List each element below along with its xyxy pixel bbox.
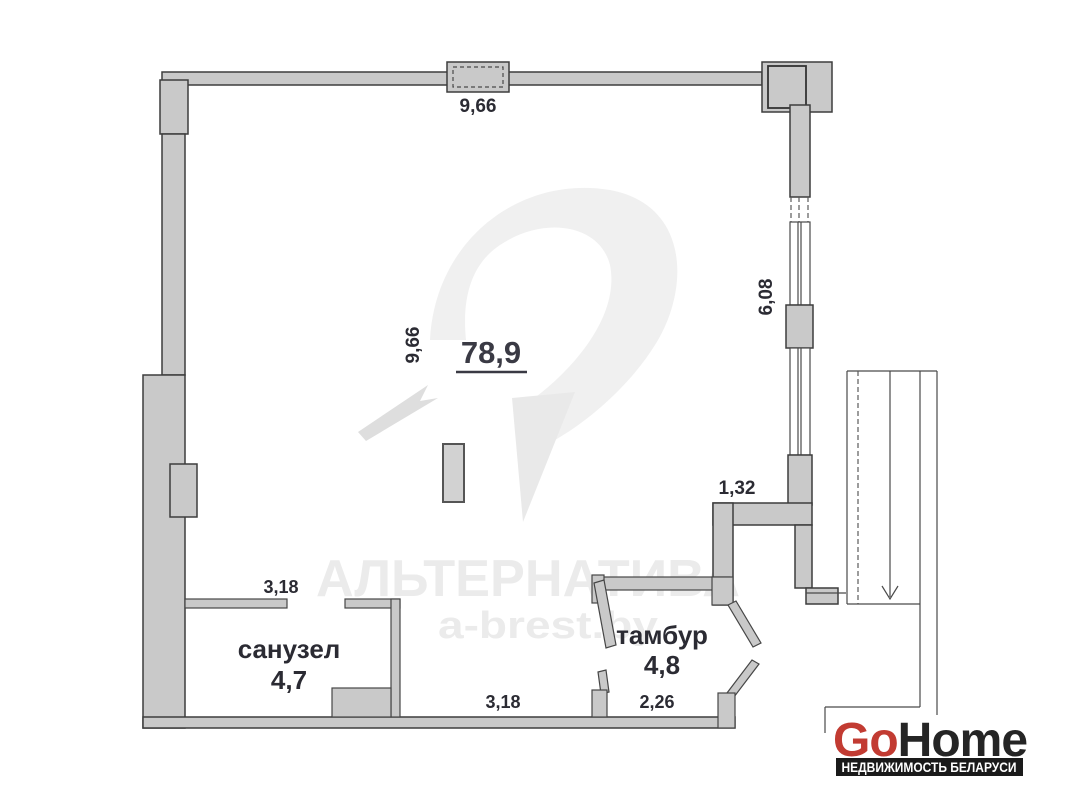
watermark-logo-shape [358,385,438,441]
dim-inner-width: 9,66 [403,327,424,364]
right-window-1 [790,222,810,305]
corner-column-ne-inner [768,66,806,108]
stair-landing-block [806,588,838,604]
tambur-wall-top [593,577,730,590]
bathroom-label: санузел [238,634,341,664]
bathroom-vent-shaft [332,688,391,717]
right-wall-block [786,305,813,348]
tambur-area: 4,8 [644,650,680,680]
left-wall-top-column [160,80,188,134]
tambur-corner-block [712,577,733,605]
gohome-tagline: НЕДВИЖИМОСТЬ БЕЛАРУСИ [842,760,1017,775]
bottom-wall [143,717,735,728]
staircase [806,371,937,733]
bathroom-wall-right [391,599,400,717]
left-wall-pilaster [170,464,197,517]
tambur-door-jamb-upper [728,601,761,647]
top-window-box-inner [453,67,503,87]
right-wall-below-niche [795,525,812,588]
bathroom-wall-top-left [185,599,287,608]
dim-niche-width: 1,32 [719,478,756,499]
left-wall-upper [162,134,185,375]
room-column [443,444,464,502]
right-wall-lower [788,455,812,505]
dim-bathroom-width: 3,18 [263,577,298,597]
dim-top-width: 9,66 [460,96,497,117]
tambur-post-bottom-right [718,693,735,728]
dim-right-height: 6,08 [756,279,777,316]
gohome-logo: GoHome НЕДВИЖИМОСТЬ БЕЛАРУСИ [833,714,1027,776]
tambur-label: тамбур [616,620,708,650]
watermark-logo-shape [512,392,575,522]
floor-plan-page: АЛЬТЕРНАТИВА a-brest.by [0,0,1068,800]
right-wall-upper [790,105,810,197]
left-wall-lower [143,375,185,728]
tambur-post-bottom-left [592,690,607,717]
bathroom-area: 4,7 [271,665,307,695]
tambur-door-jamb-lower [727,660,759,697]
total-area-label: 78,9 [461,335,521,370]
dim-tambur-width: 2,26 [639,692,674,712]
right-window-2 [790,348,810,455]
dim-bottom-width: 3,18 [485,692,520,712]
floor-plan-canvas: АЛЬТЕРНАТИВА a-brest.by [0,0,1068,800]
